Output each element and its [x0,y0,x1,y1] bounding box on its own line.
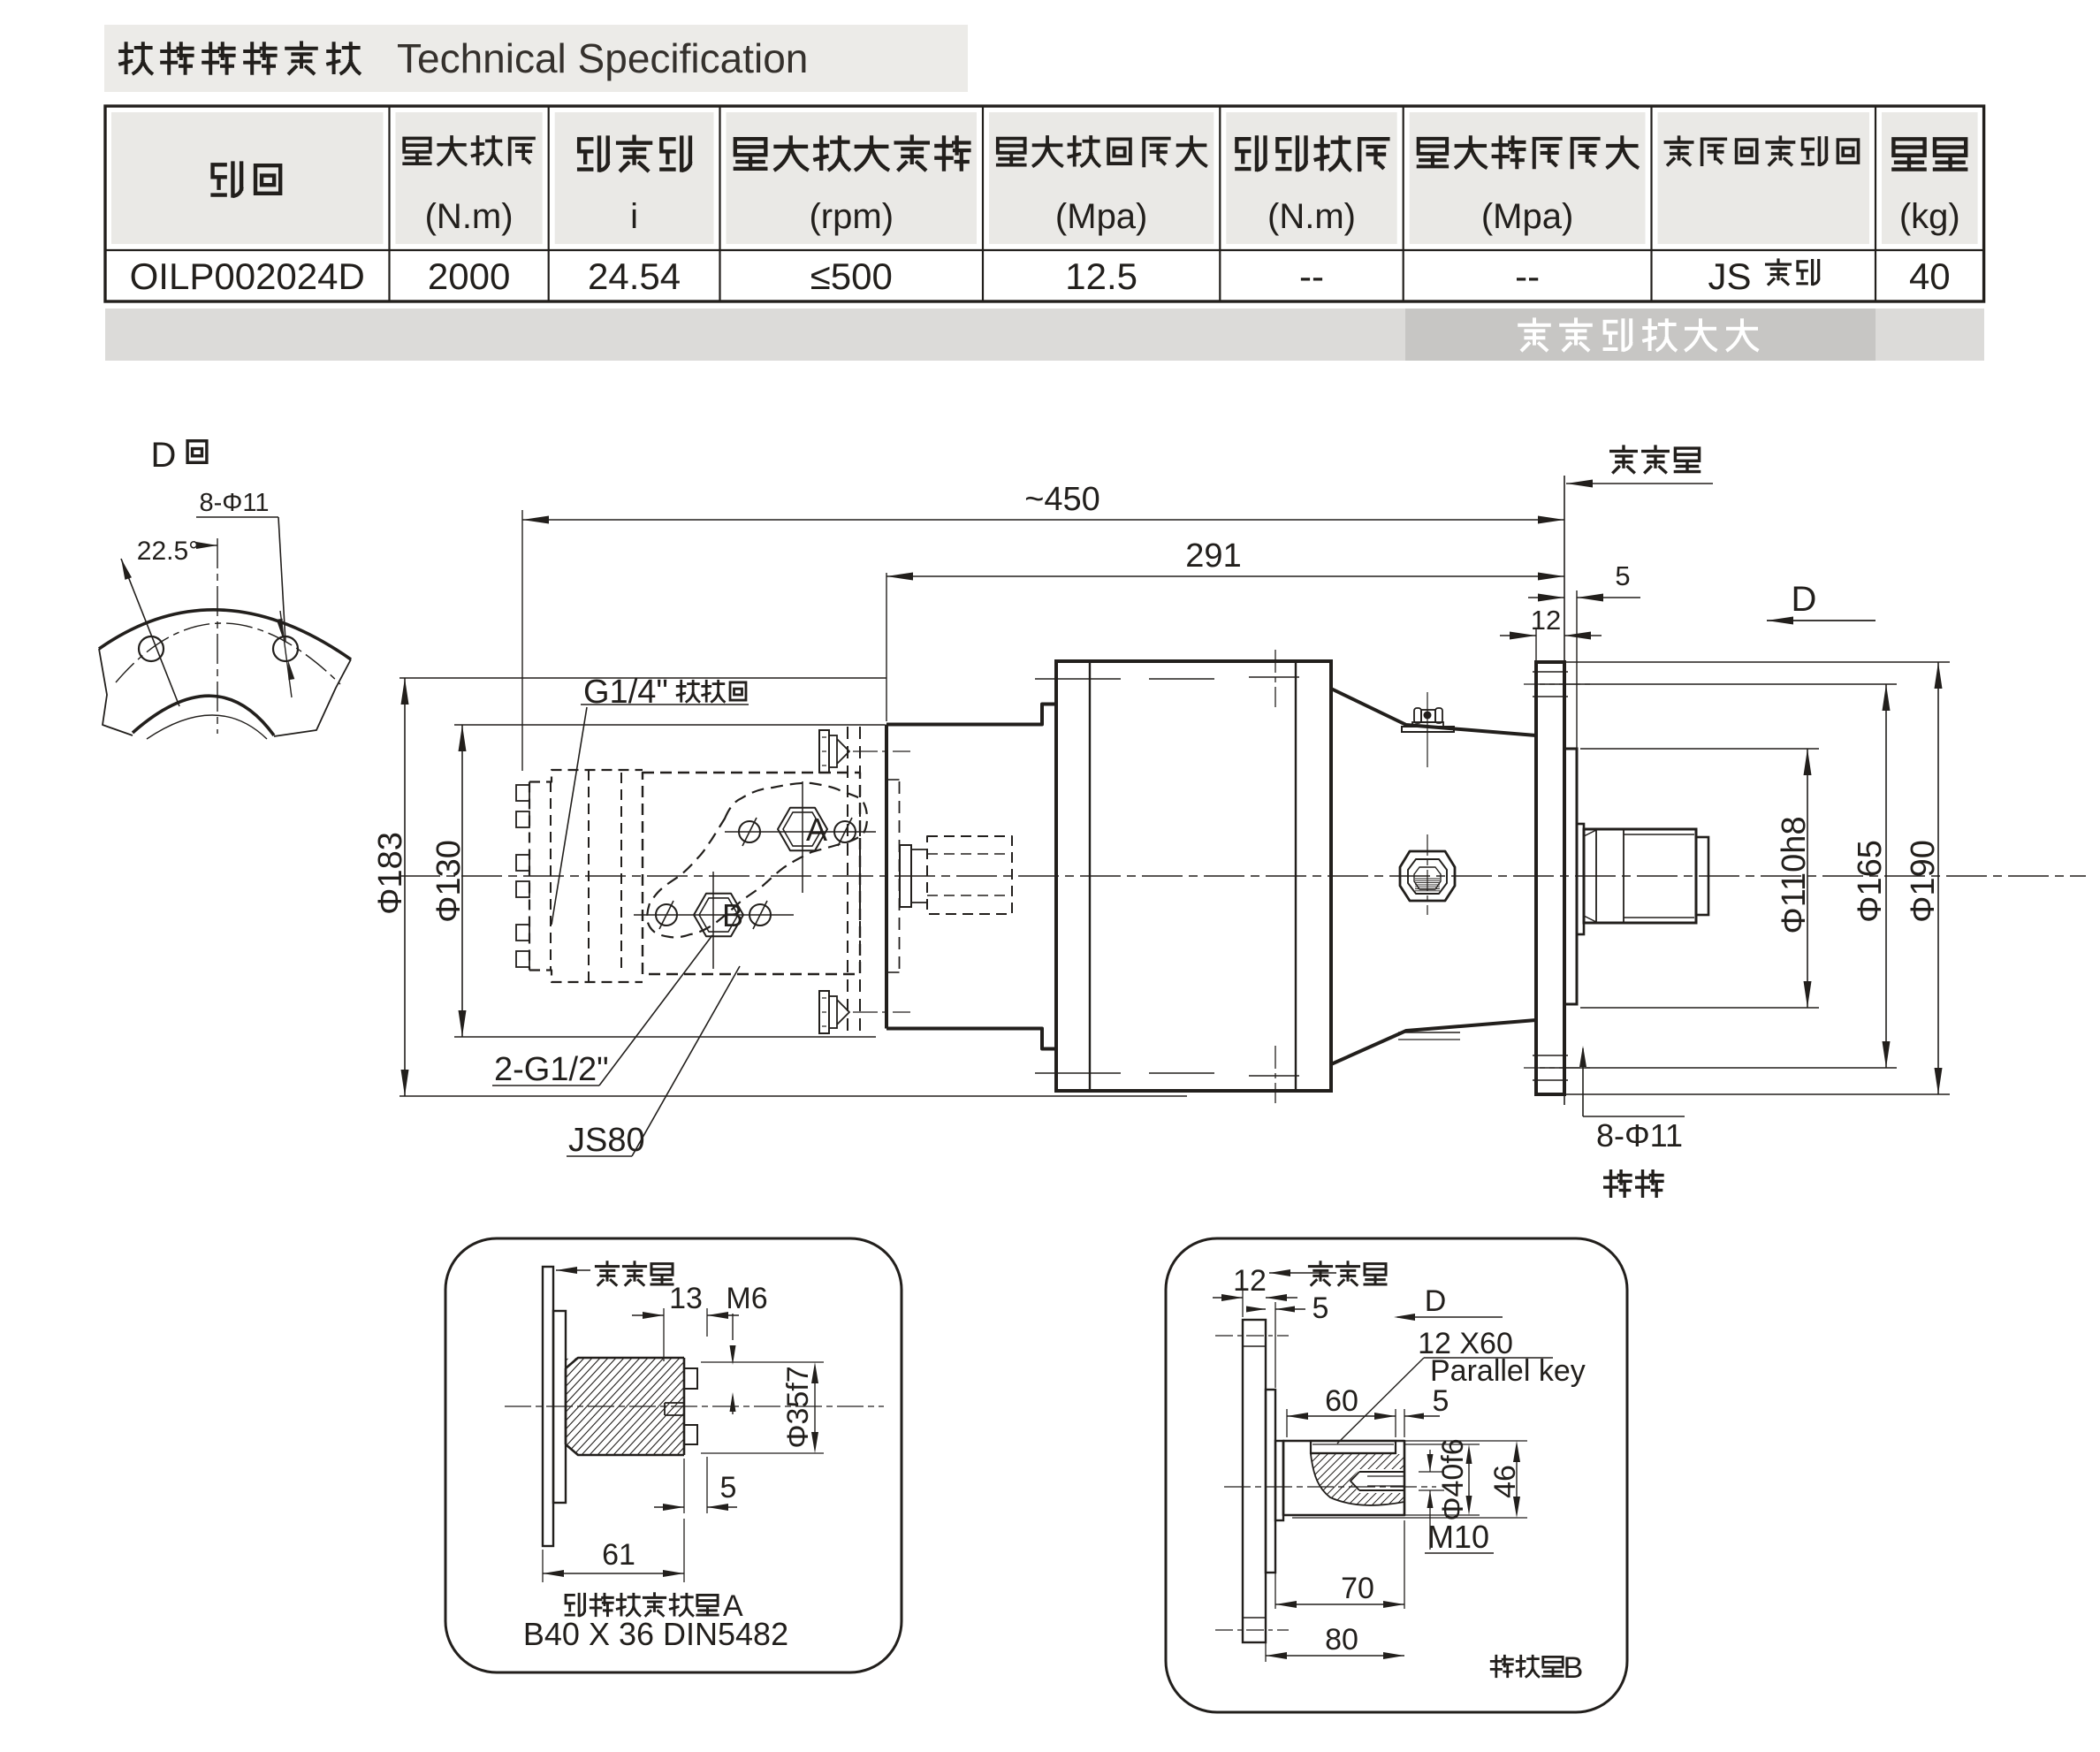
svg-text:80: 80 [1325,1623,1358,1657]
svg-text:JS: JS [1708,255,1751,297]
svg-text:(kg): (kg) [1899,197,1960,236]
svg-text:Φ40f6: Φ40f6 [1436,1438,1470,1520]
svg-text:(N.m): (N.m) [425,197,514,236]
svg-text:B40 X 36 DIN5482: B40 X 36 DIN5482 [523,1616,788,1652]
svg-text:(Mpa): (Mpa) [1481,197,1573,236]
svg-text:Φ110h8: Φ110h8 [1776,816,1813,933]
svg-text:40: 40 [1909,255,1951,297]
svg-text:13: 13 [669,1282,703,1315]
svg-text:8-Φ11: 8-Φ11 [199,489,269,517]
svg-text:(rpm): (rpm) [809,197,894,236]
svg-text:5: 5 [1615,560,1630,591]
svg-text:Φ183: Φ183 [372,832,409,915]
svg-text:Φ165: Φ165 [1852,840,1889,923]
svg-text:OILP002024D: OILP002024D [130,255,365,297]
svg-text:12.5: 12.5 [1065,255,1137,297]
svg-text:B: B [1564,1651,1584,1685]
svg-text:70: 70 [1341,1572,1374,1605]
svg-text:61: 61 [602,1538,635,1572]
svg-text:5: 5 [1312,1291,1329,1325]
svg-text:Parallel key: Parallel key [1430,1354,1586,1388]
svg-text:12: 12 [1531,605,1561,636]
svg-text:5: 5 [720,1471,737,1504]
svg-text:Φ35f7: Φ35f7 [781,1366,815,1448]
svg-text:(Mpa): (Mpa) [1055,197,1147,236]
svg-text:D: D [151,436,177,475]
svg-text:12: 12 [1233,1264,1267,1298]
svg-text:8-Φ11: 8-Φ11 [1596,1117,1683,1154]
svg-text:Technical Specification: Technical Specification [397,35,808,81]
svg-text:291: 291 [1185,537,1241,575]
svg-text:60: 60 [1325,1384,1358,1418]
svg-text:A: A [806,811,827,848]
svg-text:i: i [630,197,638,236]
svg-text:2000: 2000 [428,255,510,297]
svg-text:~450: ~450 [1024,481,1100,518]
svg-text:D: D [1425,1284,1447,1318]
svg-text:--: -- [1515,255,1540,297]
svg-text:Φ190: Φ190 [1905,840,1942,923]
svg-text:M6: M6 [726,1282,767,1315]
svg-text:M10: M10 [1427,1519,1489,1555]
svg-text:--: -- [1299,255,1324,297]
svg-text:5: 5 [1433,1384,1449,1418]
svg-text:D: D [1792,580,1817,619]
svg-text:2-G1/2": 2-G1/2" [494,1051,609,1088]
svg-text:(N.m): (N.m) [1267,197,1356,236]
svg-text:22.5°: 22.5° [137,537,199,566]
svg-text:Φ130: Φ130 [430,840,468,923]
svg-text:24.54: 24.54 [588,255,681,297]
svg-text:≤500: ≤500 [810,255,893,297]
